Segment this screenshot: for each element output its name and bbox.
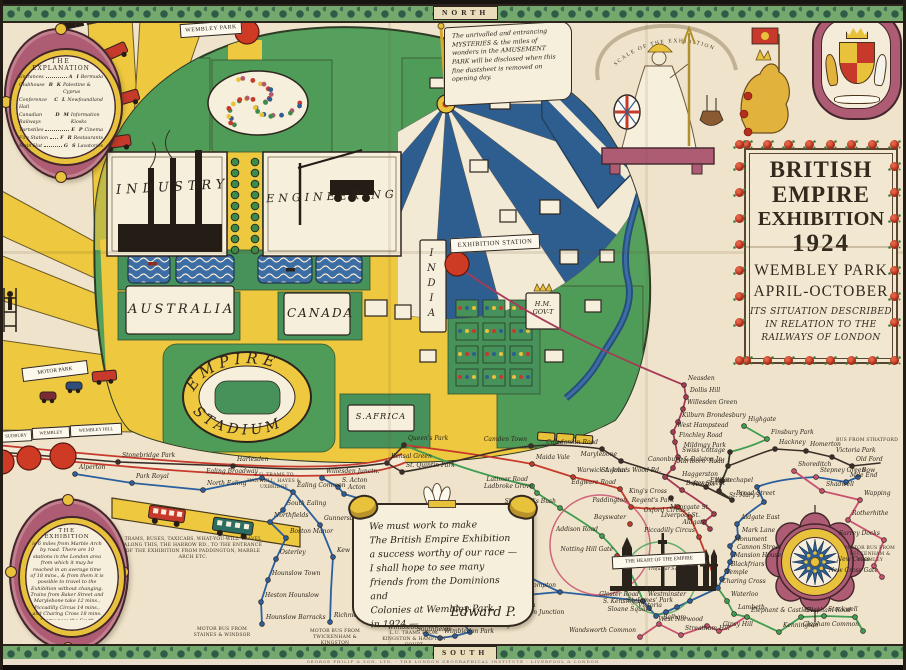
station-dot [400, 470, 405, 475]
south-africa-label: S.AFRICA [350, 412, 412, 422]
hm-govt-label-1: H.M. [527, 300, 559, 308]
station-dot [571, 475, 576, 480]
station-dot [697, 535, 702, 540]
station-dot [822, 614, 827, 619]
station-dot [814, 475, 819, 480]
station-dot [730, 498, 735, 503]
rose-icon [847, 356, 856, 365]
station-dot [328, 620, 333, 625]
legend-row: ClubhouseBKPalestine & Cyprus [19, 82, 103, 97]
wembley-ribbon: WEMBLEY [32, 426, 71, 440]
north-label: NORTH [433, 6, 498, 20]
station-dot [268, 520, 273, 525]
rose-icon [890, 240, 899, 249]
station-dot [320, 476, 325, 481]
rose-icon [763, 356, 772, 365]
title-line: EMPIRE [746, 183, 896, 208]
royal-arms [812, 10, 902, 120]
station-dot [259, 600, 264, 605]
lion-supporter-icon [824, 53, 839, 86]
station-dot [231, 464, 236, 469]
australia-label: AUSTRALIA [128, 302, 232, 317]
station-dot [735, 522, 740, 527]
rose-icon [826, 140, 835, 149]
station-dot [675, 605, 680, 610]
station-dot [468, 630, 473, 635]
station-dot [600, 447, 605, 452]
station-dot [765, 437, 770, 442]
station-dot [858, 498, 863, 503]
sudbury-ribbon: SUDBURY [0, 429, 32, 443]
station-dot [830, 455, 835, 460]
station-dot [882, 538, 887, 543]
legend-cartouche: THE EXPLANATION EntrancesAIBermudaClubho… [2, 24, 120, 180]
rose-icon [890, 162, 899, 171]
station-dot [676, 420, 681, 425]
station-dot [438, 636, 443, 641]
rose-icon [805, 356, 814, 365]
rose-icon [890, 356, 899, 365]
station-dot [728, 560, 733, 565]
rose-icon [735, 188, 744, 197]
station-dot [669, 496, 674, 501]
amusement-park-scroll-text: The unrivalled and entrancing MYSTERIES … [452, 28, 556, 83]
station-dot [558, 590, 563, 595]
station-dot [684, 395, 689, 400]
station-dot [880, 575, 885, 580]
station-dot [720, 577, 725, 582]
rose-icon [805, 140, 814, 149]
rose-icon [890, 318, 899, 327]
station-dot [318, 523, 323, 528]
station-dot [130, 481, 135, 486]
station-dot [755, 485, 760, 490]
station-dot [688, 599, 693, 604]
compass-rose [766, 505, 864, 622]
station-dot [663, 475, 668, 480]
station-dot [628, 522, 633, 527]
station-dot [682, 383, 687, 388]
station-dot [618, 487, 623, 492]
station-dot [717, 489, 722, 494]
station-dot [736, 535, 741, 540]
station-dot [804, 449, 809, 454]
station-dot [762, 500, 767, 505]
station-dot [705, 624, 710, 629]
motto-ribbon [834, 95, 880, 104]
title-line: BRITISH [746, 158, 896, 183]
station-dot [657, 622, 662, 627]
station-dot [266, 578, 271, 583]
trafalgar-square-label: Trafalgar Square [648, 567, 688, 572]
station-dot [872, 564, 877, 569]
exhibition-map-poster: EMPIRE STADIUM [0, 0, 906, 670]
fold-crease [746, 246, 896, 248]
rose-icon [784, 140, 793, 149]
station-dot [600, 534, 605, 539]
fold-crease [645, 18, 648, 646]
station-dot [731, 552, 736, 557]
rose-icon [847, 140, 856, 149]
legend-row: EntrancesAIBermuda [19, 74, 103, 82]
lion-crown-icon [756, 50, 771, 60]
station-dot [742, 424, 747, 429]
king-signature: Edward P. [450, 605, 516, 620]
photo-edge-left [0, 0, 3, 670]
title-line: RAILWAYS OF LONDON [746, 332, 896, 344]
south-label: SOUTH [433, 646, 497, 660]
station-dot [274, 557, 279, 562]
station-dot [402, 443, 407, 448]
station-dot [342, 492, 347, 497]
station-dot [671, 430, 676, 435]
rose-icon [890, 292, 899, 301]
station-dot [708, 527, 713, 532]
crown-icon [846, 26, 868, 39]
rose-icon [735, 292, 744, 301]
rose-icon [735, 162, 744, 171]
legend-row: Fire StationFRRestaurants [19, 135, 103, 143]
station-dot [773, 447, 778, 452]
station-dot [424, 632, 429, 637]
station-dot [284, 536, 289, 541]
station-dot [116, 460, 121, 465]
rose-icon [890, 140, 899, 149]
station-dot [725, 599, 730, 604]
rose-icon [868, 140, 877, 149]
rose-icon [763, 140, 772, 149]
rose-icon [735, 318, 744, 327]
crown-icon [534, 284, 552, 291]
station-dot [856, 475, 861, 480]
hm-govt-label-2: GOV-T [527, 308, 559, 316]
title-line: IN RELATION TO THE [746, 319, 896, 331]
station-dot [619, 459, 624, 464]
station-dot [725, 569, 730, 574]
station-dot [530, 462, 535, 467]
rose-icon [784, 356, 793, 365]
boat [286, 268, 295, 272]
station-dot [336, 485, 341, 490]
station-dot [73, 472, 78, 477]
rose-icon [890, 214, 899, 223]
station-dot [712, 512, 717, 517]
rose-icon [890, 188, 899, 197]
title-line: APRIL-OCTOBER [746, 282, 896, 301]
station-dot [676, 505, 681, 510]
legend-title-2: EXPLANATION [19, 65, 103, 72]
title-line: EXHIBITION [746, 208, 896, 231]
station-dot [260, 622, 265, 627]
king-message-scroll: We must work to makeThe British Empire E… [352, 503, 534, 627]
station-dot [671, 466, 676, 471]
rose-icon [735, 240, 744, 249]
station-dot [844, 480, 849, 485]
photo-edge-bottom [0, 665, 906, 670]
title-line: WEMBLEY PARK [746, 261, 896, 280]
station-dot [558, 506, 563, 511]
border-band-north: NORTH [3, 4, 903, 23]
station-dot [676, 455, 681, 460]
station-dot [853, 615, 858, 620]
station-dot [681, 407, 686, 412]
exhibition-cartouche-title-2: EXHIBITION [30, 534, 104, 540]
station-dot [792, 469, 797, 474]
station-dot [726, 464, 731, 469]
station-dot [673, 440, 678, 445]
station-dot [281, 508, 286, 513]
station-dot [535, 491, 540, 496]
station-dot [638, 635, 643, 640]
station-dot [664, 610, 669, 615]
gardens-circle [208, 71, 308, 135]
station-dot [850, 464, 855, 469]
legend-row: Canadian RailwaysDMInformation Kiosks [19, 112, 103, 127]
station-dot [846, 518, 851, 523]
station-dot [728, 544, 733, 549]
station-dot [716, 586, 721, 591]
station-dot [777, 630, 782, 635]
legend-title-1: THE [19, 58, 103, 65]
rose-icon [735, 356, 744, 365]
legend-row: TurnstilesEPCinema [19, 127, 103, 135]
station-dot [679, 633, 684, 638]
legend-row: Main HutGSLavatories [19, 143, 103, 148]
station-dot [291, 490, 296, 495]
legend-entries: EntrancesAIBermudaClubhouseBKPalestine &… [19, 74, 103, 148]
amusement-park-scroll: The unrivalled and entrancing MYSTERIES … [444, 21, 572, 107]
station-dot [680, 488, 685, 493]
station-dot [453, 634, 458, 639]
station-dot [861, 629, 866, 634]
unicorn-supporter-icon [873, 53, 888, 86]
station-dot [720, 479, 725, 484]
rose-icon [868, 356, 877, 365]
rose-icon [735, 214, 744, 223]
title-panel: BRITISH EMPIRE EXHIBITION 1924 WEMBLEY P… [744, 148, 898, 364]
station-dot [201, 488, 206, 493]
india-label: INDIA [426, 248, 437, 323]
rose-icon [735, 140, 744, 149]
station-dot [331, 555, 336, 560]
station-dot [654, 614, 659, 619]
rose-icon [826, 356, 835, 365]
boat [148, 262, 157, 266]
station-dot [688, 515, 693, 520]
station-dot [529, 444, 534, 449]
station-dot [728, 450, 733, 455]
title-line: ITS SITUATION DESCRIBED [746, 306, 896, 318]
ship-icon [700, 111, 723, 126]
station-dot [745, 615, 750, 620]
station-dot [260, 476, 265, 481]
coronet-icon [428, 500, 456, 508]
station-dot [702, 520, 707, 525]
station-dot [717, 629, 722, 634]
station-dot [799, 615, 804, 620]
rose-icon [735, 266, 744, 275]
station-dot [704, 485, 709, 490]
station-dot [732, 612, 737, 617]
canada-label: CANADA [287, 306, 347, 320]
title-line: 1924 [746, 230, 896, 259]
royal-shield-icon [839, 42, 875, 84]
rose-icon [890, 266, 899, 275]
station-dot [820, 489, 825, 494]
station-dot [629, 505, 634, 510]
exhibition-info-cartouche: THE EXHIBITION is 6 miles from Marble Ar… [6, 496, 128, 654]
exhibition-cartouche-text: is 6 miles from Marble Arch by road. The… [30, 541, 104, 620]
station-dot [530, 484, 535, 489]
legend-row: Conference HallCLNewfoundland [19, 97, 103, 112]
